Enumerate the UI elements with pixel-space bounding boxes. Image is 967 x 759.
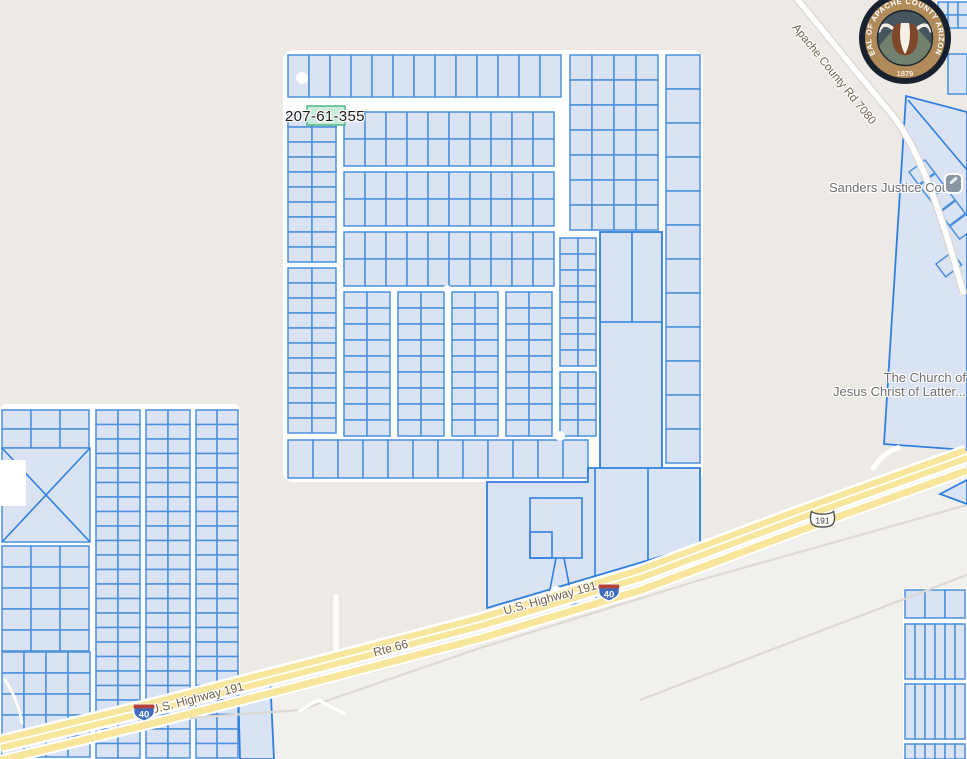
parcel-lot[interactable] [146,425,168,440]
parcel-lot[interactable] [118,744,140,759]
parcel-lot[interactable] [506,308,529,324]
parcel-lot[interactable] [146,541,168,556]
parcel-lot[interactable] [312,358,336,373]
parcel-lot[interactable] [958,2,967,15]
parcel-lot[interactable] [905,624,915,679]
parcel-lot[interactable] [60,630,89,651]
parcel-lot[interactable] [118,468,140,483]
parcel-lot[interactable] [475,356,498,372]
parcel-lot[interactable] [666,191,700,225]
parcel-lot[interactable] [365,232,386,259]
parcel-lot[interactable] [666,259,700,293]
parcel-lot[interactable] [68,652,90,673]
parcel-lot[interactable] [217,425,238,440]
parcel-lot[interactable] [365,199,386,226]
parcel-lot[interactable] [614,205,636,230]
parcel-lot[interactable] [96,744,118,759]
parcel-lot[interactable] [146,729,168,744]
parcel-lot[interactable] [288,373,312,388]
parcel-lot[interactable] [428,172,449,199]
parcel-lot[interactable] [367,292,390,308]
parcel-lot[interactable] [398,324,421,340]
parcel-lot[interactable] [452,420,475,436]
parcel-lot[interactable] [312,418,336,433]
parcel-lot[interactable] [312,388,336,403]
parcel-lot[interactable] [578,270,596,286]
parcel-lot[interactable] [288,268,312,283]
parcel-lot[interactable] [560,388,578,404]
parcel-lot[interactable] [578,318,596,334]
parcel-lot[interactable] [945,590,965,618]
parcel-lot[interactable] [367,356,390,372]
parcel-lot[interactable] [2,546,31,567]
parcel-lot[interactable] [955,684,965,739]
parcel-lot[interactable] [118,555,140,570]
parcel-lot[interactable] [168,555,190,570]
parcel-lot[interactable] [540,55,561,97]
parcel-lot[interactable] [196,439,217,454]
parcel-lot[interactable] [118,454,140,469]
parcel-lot[interactable] [288,157,312,172]
parcel-lot[interactable] [344,372,367,388]
parcel-lot[interactable] [96,555,118,570]
parcel-lot[interactable] [288,298,312,313]
parcel-lot[interactable] [512,172,533,199]
parcel-lot[interactable] [428,112,449,139]
parcel-lot[interactable] [570,130,592,155]
parcel-lot[interactable] [217,613,238,628]
parcel-lot[interactable] [428,139,449,166]
parcel-lot[interactable] [529,372,552,388]
parcel-lot[interactable] [60,546,89,567]
parcel-lot[interactable] [60,567,89,588]
parcel-lot[interactable] [2,588,31,609]
parcel-lot[interactable] [452,404,475,420]
parcel-lot[interactable] [452,292,475,308]
parcel-lot[interactable] [435,55,456,97]
parcel-lot[interactable] [578,404,596,420]
parcel-lot[interactable] [168,613,190,628]
parcel-lot[interactable] [312,232,336,247]
parcel-lot[interactable] [367,420,390,436]
parcel-lot[interactable] [118,410,140,425]
parcel-lot[interactable] [96,497,118,512]
parcel-lot[interactable] [118,642,140,657]
parcel-lot[interactable] [421,308,444,324]
parcel-lot[interactable] [428,259,449,286]
parcel-lot[interactable] [578,302,596,318]
parcel-lot[interactable] [578,286,596,302]
parcel-lot[interactable] [168,526,190,541]
parcel-lot[interactable] [533,232,554,259]
parcel-lot[interactable] [578,334,596,350]
parcel-lot[interactable] [217,570,238,585]
parcel-lot[interactable] [614,55,636,80]
parcel-lot[interactable] [449,172,470,199]
parcel-lot[interactable] [217,439,238,454]
parcel-lot[interactable] [470,199,491,226]
parcel-lot[interactable] [955,624,965,679]
parcel-lot[interactable] [217,642,238,657]
parcel-lot[interactable] [393,55,414,97]
parcel-lot[interactable] [217,628,238,643]
parcel-lot[interactable] [96,483,118,498]
parcel-lot[interactable] [563,440,588,478]
parcel-lot[interactable] [288,403,312,418]
parcel-lot[interactable] [168,541,190,556]
parcel-lot[interactable] [512,112,533,139]
parcel-lot[interactable] [288,440,313,478]
parcel-lot[interactable] [407,172,428,199]
parcel-lot[interactable] [533,112,554,139]
parcel-lot[interactable] [592,205,614,230]
parcel-lot[interactable] [68,694,90,715]
parcel-lot[interactable] [217,526,238,541]
parcel-lot[interactable] [506,404,529,420]
parcel-lot[interactable] [529,388,552,404]
parcel-lot[interactable] [560,318,578,334]
parcel-lot[interactable] [288,217,312,232]
parcel-lot[interactable] [925,590,945,618]
parcel-lot[interactable] [168,671,190,686]
parcel-lot[interactable] [407,232,428,259]
parcel-lot[interactable] [118,613,140,628]
parcel-lot[interactable] [421,340,444,356]
parcel-lot[interactable] [398,420,421,436]
parcel-lot[interactable] [592,130,614,155]
parcel-lot[interactable] [398,388,421,404]
parcel-lot[interactable] [2,609,31,630]
parcel-lot[interactable] [636,80,658,105]
parcel-lot[interactable] [312,202,336,217]
parcel-lot[interactable] [475,388,498,404]
parcel-lot[interactable] [512,259,533,286]
parcel-lot[interactable] [312,157,336,172]
parcel-lot[interactable] [312,283,336,298]
parcel-lot[interactable] [367,308,390,324]
parcel-lot[interactable] [118,512,140,527]
parcel-lot[interactable] [578,420,596,436]
parcel-lot[interactable] [367,372,390,388]
parcel-lot[interactable] [344,172,365,199]
parcel-lot[interactable] [46,673,68,694]
parcel-lot[interactable] [452,372,475,388]
subdivision-southeast[interactable] [903,588,967,759]
parcel-lot[interactable] [386,232,407,259]
parcel-lot[interactable] [344,292,367,308]
parcel-lot[interactable] [925,744,935,759]
parcel-lot[interactable] [538,440,563,478]
parcel-lot[interactable] [96,425,118,440]
parcel-lot[interactable] [905,744,915,759]
parcel-lot[interactable] [196,410,217,425]
parcel-lot[interactable] [217,555,238,570]
parcel-lot[interactable] [60,410,89,429]
parcel-lot[interactable] [146,671,168,686]
parcel-lot[interactable] [570,205,592,230]
parcel-lot[interactable] [935,624,945,679]
parcel-lot[interactable] [96,526,118,541]
parcel-lot[interactable] [24,673,46,694]
parcel-lot[interactable] [196,599,217,614]
parcel-lot[interactable] [196,541,217,556]
parcel-lot[interactable] [421,372,444,388]
parcel-lot[interactable] [414,55,435,97]
parcel-lot[interactable] [636,180,658,205]
parcel-lot[interactable] [330,55,351,97]
parcel-lot[interactable] [196,483,217,498]
parcel-lot[interactable] [386,139,407,166]
parcel-lot[interactable] [24,652,46,673]
parcel-lot[interactable] [344,356,367,372]
parcel-lot[interactable] [168,483,190,498]
parcel-lot[interactable] [506,340,529,356]
parcel-lot[interactable] [46,652,68,673]
parcel-lot[interactable] [168,497,190,512]
parcel-lot[interactable] [491,112,512,139]
parcel-lot[interactable] [398,292,421,308]
parcel-lot[interactable] [31,588,60,609]
parcel-lot[interactable] [288,313,312,328]
parcel-lot[interactable] [312,298,336,313]
parcel-lot[interactable] [217,584,238,599]
parcel-lot[interactable] [560,286,578,302]
parcel-lot[interactable] [217,599,238,614]
parcel-lot[interactable] [60,609,89,630]
parcel-lot[interactable] [196,526,217,541]
parcel-lot[interactable] [168,425,190,440]
parcel-lot[interactable] [146,483,168,498]
parcel-lot[interactable] [421,420,444,436]
parcel-lot[interactable] [529,308,552,324]
parcel-lot[interactable] [560,404,578,420]
parcel-lot[interactable] [60,429,89,448]
parcel-lot[interactable] [367,404,390,420]
parcel-lot[interactable] [506,324,529,340]
parcel-lot[interactable] [168,468,190,483]
parcel-lot[interactable] [365,112,386,139]
parcel-lot[interactable] [592,80,614,105]
parcel-lot[interactable] [386,172,407,199]
parcel-lot[interactable] [2,429,31,448]
parcel-lot[interactable] [506,372,529,388]
parcel-lot[interactable] [491,172,512,199]
parcel-lot[interactable] [560,254,578,270]
parcel-lot[interactable] [344,420,367,436]
parcel-lot[interactable] [570,80,592,105]
parcel-lot[interactable] [288,202,312,217]
parcel-lot[interactable] [344,199,365,226]
parcel-lot[interactable] [636,105,658,130]
parcel-lot[interactable] [666,327,700,361]
parcel-lot[interactable] [529,356,552,372]
parcel-lot[interactable] [312,127,336,142]
parcel-lot[interactable] [365,172,386,199]
parcel-lot[interactable] [2,652,24,673]
parcel-lot[interactable] [217,541,238,556]
parcel-lot[interactable] [470,172,491,199]
parcel-lot[interactable] [217,497,238,512]
parcel-lot[interactable] [196,570,217,585]
parcel-lot[interactable] [578,372,596,388]
parcel-lot[interactable] [312,172,336,187]
parcel-lot[interactable] [118,657,140,672]
parcel-lot[interactable] [96,541,118,556]
parcel-lot[interactable] [96,512,118,527]
parcel-lot[interactable] [398,308,421,324]
parcel-lot[interactable] [96,584,118,599]
parcel-lot[interactable] [386,112,407,139]
parcel-lot[interactable] [196,628,217,643]
parcel-lot[interactable] [666,395,700,429]
parcel-lot[interactable] [196,497,217,512]
parcel-lot[interactable] [31,410,60,429]
parcel-lot[interactable] [945,624,955,679]
parcel-lot[interactable] [398,372,421,388]
parcel-lot[interactable] [168,744,190,759]
parcel-lot[interactable] [421,388,444,404]
parcel-lot[interactable] [344,324,367,340]
parcel-lot[interactable] [592,105,614,130]
parcel-lot[interactable] [488,440,513,478]
poi-label-church[interactable]: The Church of Jesus Christ of Latter... [833,371,966,399]
parcel-lot[interactable] [196,555,217,570]
parcel-lot[interactable] [96,686,118,701]
parcel-lot[interactable] [118,599,140,614]
parcel-lot[interactable] [449,232,470,259]
parcel-lot[interactable] [666,293,700,327]
parcel-lot[interactable] [636,55,658,80]
parcel-lot[interactable] [344,139,365,166]
parcel-lot[interactable] [312,328,336,343]
parcel-lot[interactable] [935,684,945,739]
parcel-lot[interactable] [958,15,967,28]
parcel-lot[interactable] [2,673,24,694]
parcel-lot[interactable] [475,420,498,436]
parcel-lot[interactable] [146,410,168,425]
parcel-lot[interactable] [31,567,60,588]
parcel-lot[interactable] [578,238,596,254]
parcel-lot[interactable] [146,642,168,657]
parcel-lot[interactable] [288,343,312,358]
parcel-lot[interactable] [96,613,118,628]
parcel-lot[interactable] [118,686,140,701]
parcel-lot[interactable] [196,613,217,628]
parcel-lot[interactable] [217,410,238,425]
parcel-lot[interactable] [386,259,407,286]
parcel-lot[interactable] [196,425,217,440]
parcel-lot[interactable] [24,694,46,715]
parcel-lot[interactable] [312,343,336,358]
parcel-lot[interactable] [452,308,475,324]
parcel-lot[interactable] [529,324,552,340]
parcel-lot[interactable] [470,259,491,286]
parcel-lot[interactable] [398,356,421,372]
parcel-lot[interactable] [96,570,118,585]
parcel-lot[interactable] [118,483,140,498]
parcel-lot[interactable] [146,439,168,454]
parcel-lot[interactable] [118,526,140,541]
parcel-lot[interactable] [118,671,140,686]
parcel-lot[interactable] [96,628,118,643]
parcel-lot[interactable] [96,468,118,483]
parcel-lot[interactable] [338,440,363,478]
parcel-lot[interactable] [312,373,336,388]
parcel-lot[interactable] [407,199,428,226]
parcel-lot[interactable] [96,642,118,657]
parcel-lot[interactable] [428,199,449,226]
parcel-lot[interactable] [168,584,190,599]
parcel-lot[interactable] [529,292,552,308]
parcel-lot[interactable] [533,259,554,286]
parcel-lot[interactable] [288,142,312,157]
parcel-lot[interactable] [146,584,168,599]
parcel-lot[interactable] [372,55,393,97]
parcel-lot[interactable] [915,624,925,679]
parcel-lot[interactable] [31,609,60,630]
parcel-lot[interactable] [312,403,336,418]
parcel-lot[interactable] [491,139,512,166]
parcel-lot[interactable] [168,599,190,614]
parcel-lot[interactable] [146,468,168,483]
parcel-lot[interactable] [477,55,498,97]
parcel-lot[interactable] [915,744,925,759]
parcel-lot[interactable] [288,328,312,343]
parcel-lot[interactable] [529,420,552,436]
parcel-lot[interactable] [46,694,68,715]
parcel-lot[interactable] [96,454,118,469]
parcel-lot[interactable] [196,454,217,469]
parcel-lot[interactable] [398,340,421,356]
parcel-lot[interactable] [146,555,168,570]
parcel-lot[interactable] [421,356,444,372]
parcel-lot[interactable] [196,512,217,527]
parcel-lot[interactable] [367,388,390,404]
parcel-lot[interactable] [449,139,470,166]
parcel-lot[interactable] [578,350,596,366]
parcel-lot[interactable] [96,671,118,686]
parcel-lot[interactable] [365,259,386,286]
parcel-lot[interactable] [614,105,636,130]
parcel-lot[interactable] [196,468,217,483]
parcel-lot[interactable] [512,232,533,259]
map-canvas[interactable]: 207-61-355 Apache County Rd 7080 Sanders… [0,0,967,759]
parcel-lot[interactable] [2,567,31,588]
parcel-lot[interactable] [407,259,428,286]
parcel-lot[interactable] [915,684,925,739]
parcel-lot[interactable] [560,334,578,350]
parcel-lot[interactable] [513,440,538,478]
parcel-lot[interactable] [344,388,367,404]
parcel-lot[interactable] [312,268,336,283]
parcel-lot[interactable] [475,308,498,324]
parcel-lot[interactable] [666,89,700,123]
parcel-lot[interactable] [196,584,217,599]
parcel-lot[interactable] [529,340,552,356]
parcel-lot[interactable] [313,440,338,478]
parcel-lot[interactable] [421,324,444,340]
parcel-lot[interactable] [118,584,140,599]
parcel-lot[interactable] [344,308,367,324]
parcel-lot[interactable] [168,642,190,657]
parcel-lot[interactable] [168,729,190,744]
parcel-lot[interactable] [146,628,168,643]
parcel-lot[interactable] [614,155,636,180]
parcel-lot[interactable] [560,270,578,286]
parcel-lot[interactable] [470,139,491,166]
parcel-lot[interactable] [570,55,592,80]
parcel-lot[interactable] [146,599,168,614]
